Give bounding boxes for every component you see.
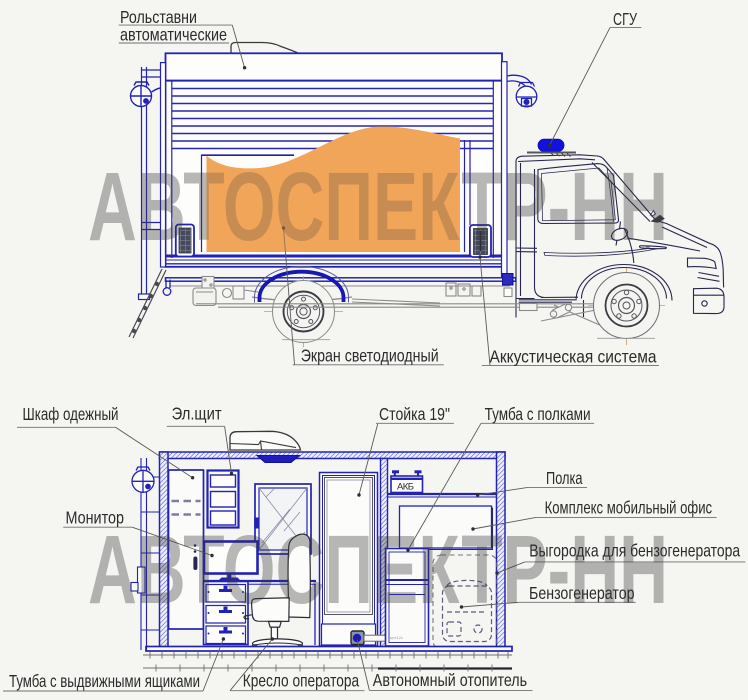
svg-text:Полка: Полка [546,468,583,488]
svg-text:автоматические: автоматические [120,25,227,45]
svg-text:Эл.щит: Эл.щит [172,404,222,424]
svg-text:Автономный отопитель: Автономный отопитель [373,670,527,690]
svg-text:СГУ: СГУ [613,9,638,29]
svg-text:щит12з: щит12з [389,635,403,640]
svg-text:Тумба с полками: Тумба с полками [485,404,591,424]
svg-text:Тумба с выдвижными ящиками: Тумба с выдвижными ящиками [9,671,200,691]
svg-text:АКБ: АКБ [397,482,414,493]
svg-text:Кресло оператора: Кресло оператора [243,670,360,690]
svg-text:Аккустическая система: Аккустическая система [490,346,657,366]
svg-text:АВТОСПЕКТР-НН: АВТОСПЕКТР-НН [88,515,668,624]
svg-text:Стойка 19": Стойка 19" [379,404,450,424]
svg-text:Шкаф одежный: Шкаф одежный [23,404,119,424]
svg-text:Экран светодиодный: Экран светодиодный [301,345,439,365]
